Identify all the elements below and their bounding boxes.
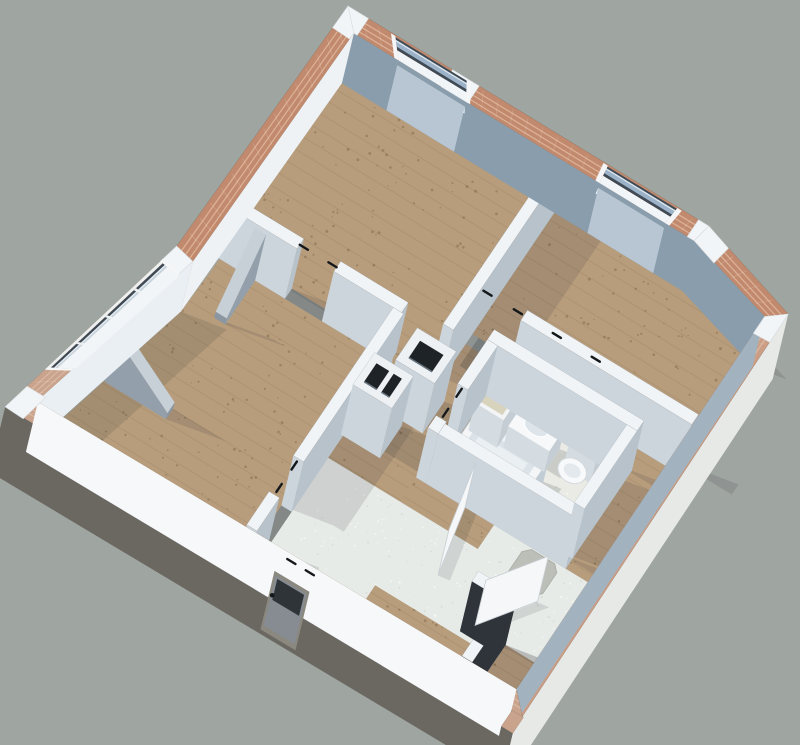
floorplan-canvas bbox=[0, 0, 800, 745]
entry-door-handle bbox=[270, 593, 275, 598]
floorplan-3d-render bbox=[0, 0, 800, 745]
floorplan-svg bbox=[0, 0, 800, 745]
